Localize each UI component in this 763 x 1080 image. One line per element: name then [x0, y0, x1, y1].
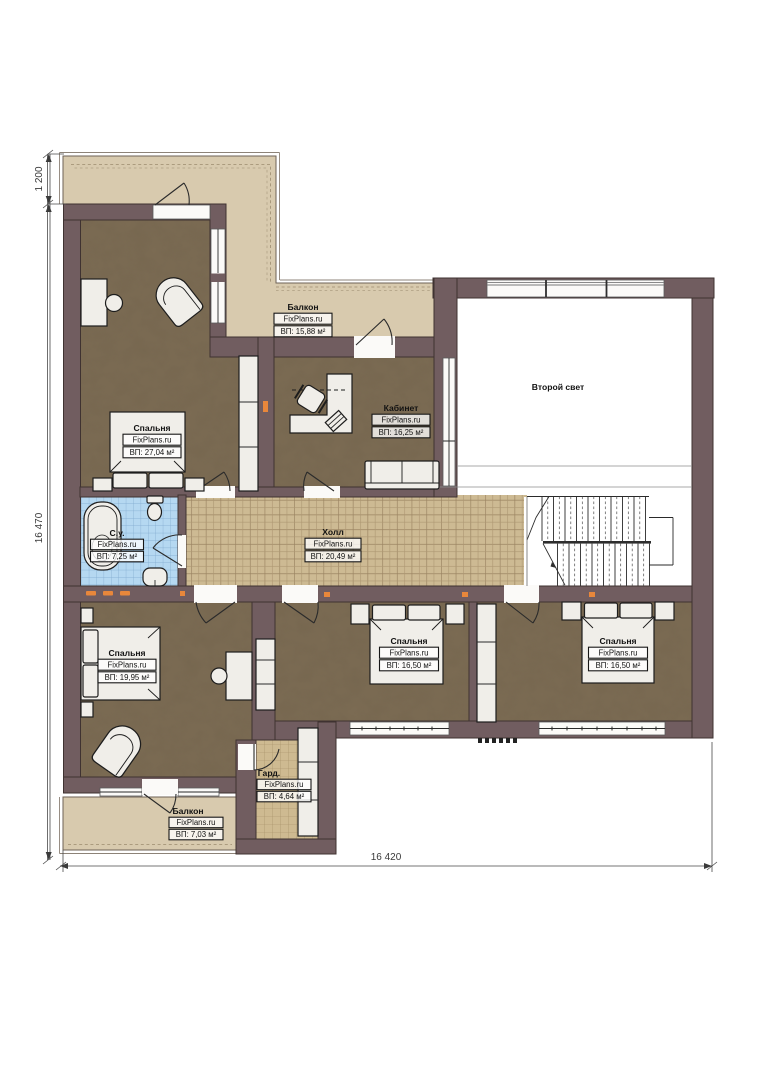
svg-text:1 200: 1 200	[34, 166, 45, 191]
svg-text:FixPlans.ru: FixPlans.ru	[284, 315, 323, 324]
svg-text:FixPlans.ru: FixPlans.ru	[133, 436, 172, 445]
svg-text:ВП: 16,25 м²: ВП: 16,25 м²	[379, 428, 424, 437]
svg-text:Спальня: Спальня	[599, 636, 636, 646]
svg-text:ВП: 19,95 м²: ВП: 19,95 м²	[105, 673, 150, 682]
svg-text:ВП: 16,50 м²: ВП: 16,50 м²	[387, 661, 432, 670]
svg-text:Кабинет: Кабинет	[384, 403, 419, 413]
svg-text:ВП: 16,50 м²: ВП: 16,50 м²	[596, 661, 641, 670]
svg-text:FixPlans.ru: FixPlans.ru	[599, 649, 638, 658]
svg-text:FixPlans.ru: FixPlans.ru	[314, 540, 353, 549]
svg-text:16 420: 16 420	[371, 852, 402, 863]
svg-text:ВП: 27,04 м²: ВП: 27,04 м²	[130, 448, 175, 457]
svg-text:Спальня: Спальня	[108, 648, 145, 658]
svg-text:С.у.: С.у.	[109, 528, 124, 538]
svg-text:Гард.: Гард.	[258, 768, 280, 778]
svg-text:ВП: 20,49 м²: ВП: 20,49 м²	[311, 552, 356, 561]
svg-text:FixPlans.ru: FixPlans.ru	[265, 780, 304, 789]
svg-text:16 470: 16 470	[34, 512, 45, 543]
svg-text:ВП: 7,03 м²: ВП: 7,03 м²	[176, 830, 217, 839]
svg-text:FixPlans.ru: FixPlans.ru	[382, 416, 421, 425]
svg-text:Второй свет: Второй свет	[532, 382, 584, 392]
svg-text:Холл: Холл	[322, 527, 344, 537]
svg-text:FixPlans.ru: FixPlans.ru	[108, 661, 147, 670]
svg-text:Спальня: Спальня	[390, 636, 427, 646]
svg-text:ВП: 15,88 м²: ВП: 15,88 м²	[281, 327, 326, 336]
svg-text:ВП: 7,25 м²: ВП: 7,25 м²	[97, 552, 138, 561]
svg-text:Спальня: Спальня	[133, 423, 170, 433]
svg-text:ВП: 4,64 м²: ВП: 4,64 м²	[264, 792, 305, 801]
svg-text:Балкон: Балкон	[287, 302, 318, 312]
svg-text:FixPlans.ru: FixPlans.ru	[390, 649, 429, 658]
svg-text:Балкон: Балкон	[172, 806, 203, 816]
svg-text:FixPlans.ru: FixPlans.ru	[177, 818, 216, 827]
svg-text:FixPlans.ru: FixPlans.ru	[98, 540, 137, 549]
